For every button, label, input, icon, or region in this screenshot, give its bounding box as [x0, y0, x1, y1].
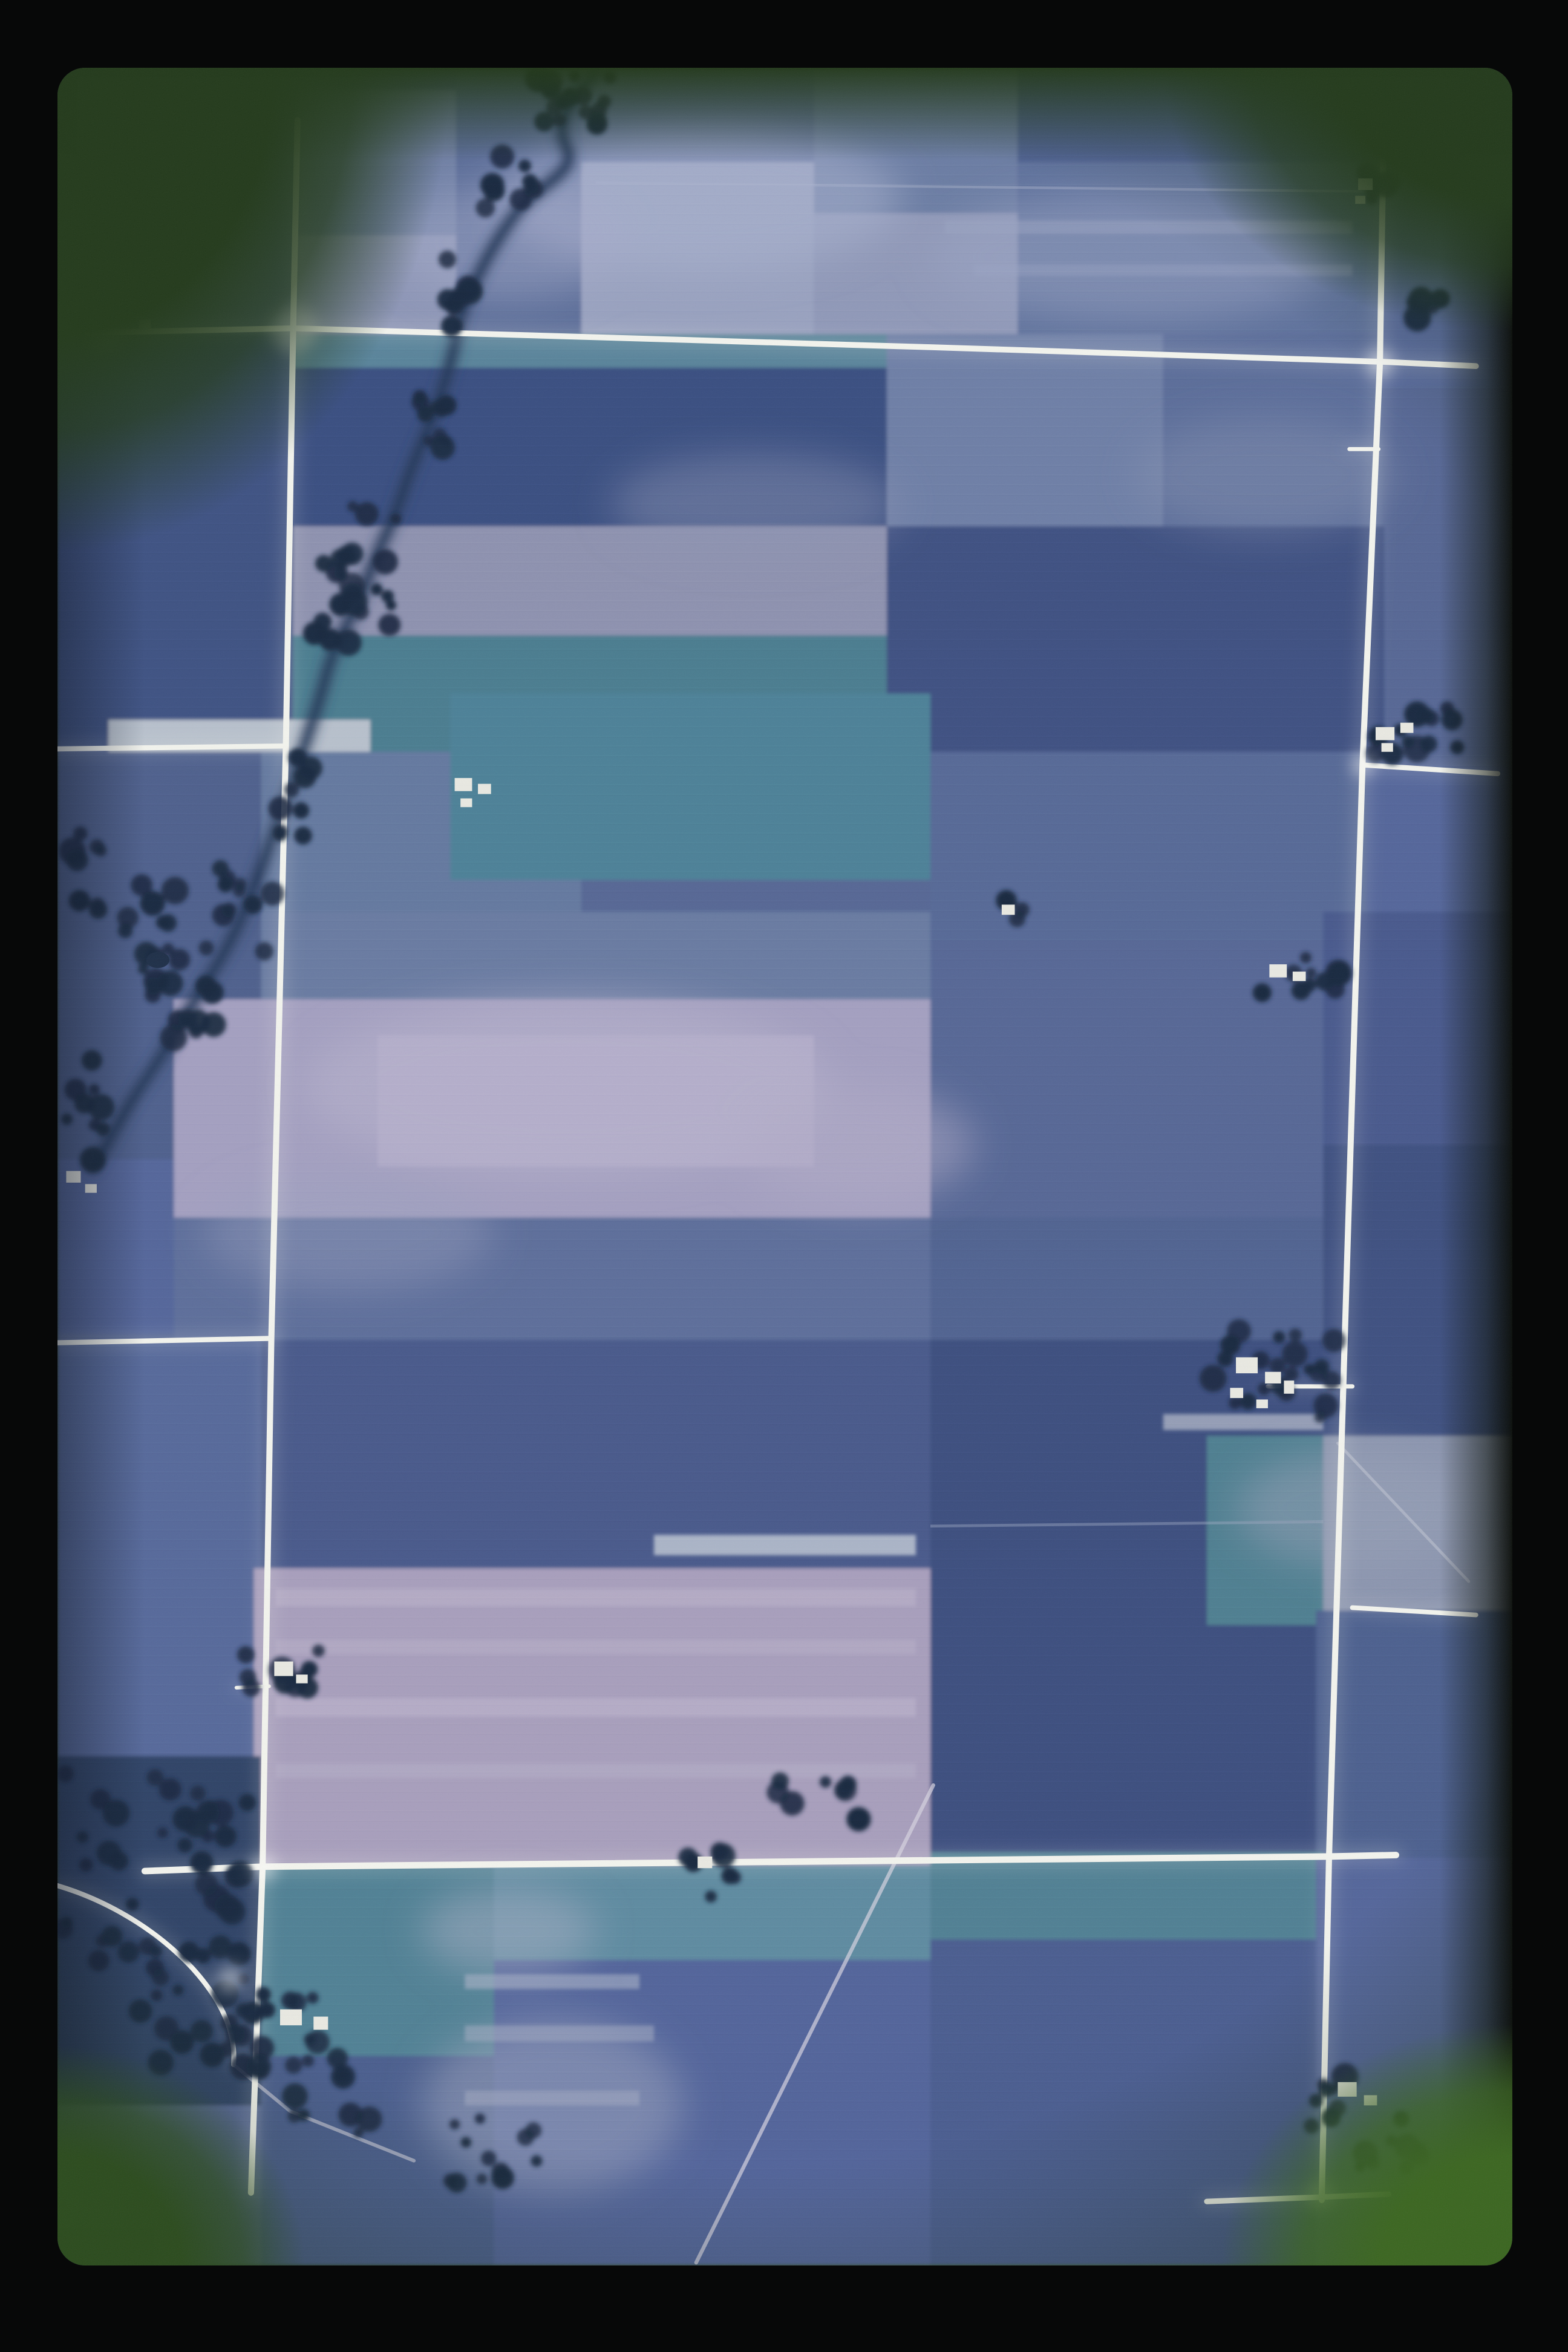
- tree: [1400, 2160, 1414, 2175]
- tree: [191, 2020, 213, 2042]
- farm-building: [85, 1184, 97, 1192]
- road-flare: [270, 305, 316, 351]
- tree: [336, 2068, 349, 2081]
- tree: [381, 590, 394, 603]
- tree: [77, 1831, 89, 1843]
- tree: [1366, 2155, 1380, 2170]
- tree: [441, 315, 463, 337]
- tree: [168, 949, 190, 970]
- tree: [1381, 170, 1402, 191]
- tree: [88, 1119, 100, 1131]
- tree: [329, 593, 352, 616]
- tree: [603, 71, 616, 84]
- road-flare: [1310, 2184, 1333, 2207]
- tree: [561, 88, 579, 106]
- tree: [1322, 1371, 1341, 1390]
- field-patch: [887, 526, 1385, 755]
- pale-patch: [741, 1086, 974, 1203]
- field-patch: [450, 694, 930, 880]
- field-streak: [465, 1975, 639, 1989]
- tree: [90, 897, 105, 913]
- tree: [1253, 983, 1272, 1002]
- tree: [242, 1679, 260, 1697]
- tree: [201, 981, 224, 1004]
- tree: [303, 622, 326, 645]
- tree: [525, 2122, 541, 2138]
- tree: [299, 757, 322, 780]
- film-frame: [57, 68, 1512, 2265]
- tree: [168, 1010, 188, 1031]
- tree: [177, 1838, 192, 1853]
- tree: [273, 824, 289, 839]
- farm-building: [460, 799, 472, 807]
- tree: [244, 895, 263, 914]
- tree: [284, 782, 299, 797]
- tree: [449, 2119, 460, 2129]
- tree: [1440, 702, 1454, 716]
- tree: [148, 2050, 174, 2076]
- farm-building: [1376, 727, 1394, 740]
- farm-building: [1338, 2082, 1356, 2097]
- tree: [587, 112, 607, 132]
- tree: [281, 1991, 299, 2010]
- tree: [373, 549, 398, 575]
- tree: [159, 1778, 181, 1800]
- tree: [159, 914, 177, 932]
- field-patch: [930, 1939, 1323, 2265]
- tree: [199, 941, 214, 956]
- tree: [1408, 287, 1434, 313]
- tree: [82, 1050, 102, 1071]
- farm-building: [66, 1171, 80, 1183]
- tree: [293, 802, 309, 818]
- farm-building: [1293, 972, 1306, 981]
- tree: [129, 1999, 152, 2023]
- tree: [1393, 2111, 1409, 2127]
- tree: [246, 2054, 271, 2079]
- tree: [439, 250, 456, 268]
- farm-building: [1236, 1357, 1258, 1373]
- tree: [481, 2151, 496, 2166]
- tree: [151, 1990, 162, 2001]
- tree: [1305, 968, 1316, 979]
- tree: [224, 1864, 249, 1888]
- tree: [523, 178, 543, 198]
- tree: [569, 70, 580, 82]
- tree: [1200, 1365, 1227, 1392]
- tree: [483, 180, 505, 201]
- tree: [201, 1012, 226, 1037]
- field-patch: [1316, 1858, 1512, 2265]
- farm-building: [1256, 1399, 1268, 1408]
- tree: [102, 1926, 123, 1947]
- farm-building: [1265, 1372, 1281, 1383]
- tree: [241, 2001, 264, 2024]
- tree: [1273, 1331, 1285, 1343]
- field-patch: [57, 1340, 261, 1759]
- tree: [1315, 1411, 1326, 1423]
- field-streak: [654, 1535, 916, 1555]
- tree: [1229, 1397, 1241, 1410]
- tree: [710, 1842, 728, 1860]
- tree: [312, 1645, 325, 1658]
- farm-building: [1230, 1388, 1243, 1398]
- tree: [238, 1794, 255, 1811]
- tree: [227, 1942, 251, 1965]
- pale-patch: [421, 2018, 683, 2193]
- tree: [835, 1782, 852, 1799]
- farm-building: [1382, 743, 1393, 751]
- tree: [417, 405, 433, 422]
- tree: [1423, 710, 1439, 726]
- tree: [1318, 2082, 1334, 2097]
- farm-building: [455, 778, 472, 791]
- tree: [162, 877, 189, 904]
- tree: [449, 287, 471, 308]
- tree: [268, 797, 292, 820]
- field-streak: [276, 1589, 916, 1606]
- tree: [294, 826, 312, 844]
- farm-building: [1358, 178, 1373, 190]
- tree: [1321, 2108, 1341, 2127]
- tree: [475, 2114, 485, 2124]
- tree: [1325, 959, 1351, 986]
- field-patch: [57, 1159, 174, 1334]
- tree: [80, 1147, 106, 1173]
- pale-patch: [930, 192, 1338, 323]
- farm-building: [274, 1662, 293, 1676]
- tree: [255, 942, 273, 961]
- tree: [255, 1987, 270, 2002]
- tree: [218, 877, 234, 892]
- pale-patch: [203, 1174, 494, 1290]
- tree: [214, 1894, 240, 1920]
- tree: [1355, 2162, 1365, 2172]
- tree: [391, 514, 402, 524]
- tree: [302, 2055, 314, 2067]
- tree: [118, 923, 133, 938]
- pale-patch: [421, 1887, 596, 1974]
- field-patch: [57, 334, 293, 749]
- tree: [97, 1841, 122, 1866]
- road-flare: [1352, 755, 1373, 776]
- tree: [1414, 2143, 1426, 2155]
- tree: [491, 2166, 514, 2189]
- tree: [1314, 1359, 1329, 1374]
- tree: [460, 2137, 471, 2148]
- farm-building: [126, 307, 142, 318]
- farm-building: [1269, 964, 1287, 978]
- tree: [1304, 2118, 1319, 2134]
- tree: [237, 1646, 255, 1664]
- farm-building: [313, 2017, 328, 2030]
- field-patch: [1367, 766, 1513, 912]
- tree: [79, 1858, 93, 1872]
- farm-building: [1355, 196, 1365, 204]
- tree: [201, 1800, 218, 1817]
- tree: [190, 1786, 205, 1802]
- tree: [282, 2083, 308, 2109]
- tree: [59, 838, 86, 865]
- tree: [190, 1851, 213, 1874]
- field-patch: [1382, 68, 1512, 388]
- tree: [728, 1870, 742, 1884]
- tree: [477, 2174, 488, 2184]
- pale-patch: [1134, 417, 1396, 533]
- tree: [126, 1898, 139, 1911]
- tree: [152, 1969, 169, 1986]
- tree: [260, 881, 284, 906]
- tree: [90, 1789, 111, 1809]
- tree: [771, 1772, 789, 1790]
- tree: [537, 69, 563, 95]
- tree: [433, 428, 446, 442]
- tree: [118, 1941, 140, 1963]
- tree: [90, 839, 105, 854]
- road-flare: [218, 1965, 244, 1991]
- tree: [1402, 736, 1414, 748]
- field-streak: [1163, 1414, 1324, 1430]
- field-streak: [276, 1763, 916, 1778]
- road-flare: [88, 316, 120, 348]
- tree: [846, 1807, 871, 1831]
- tree: [157, 1828, 168, 1838]
- field-patch: [261, 912, 930, 999]
- tree: [546, 99, 562, 115]
- tree: [233, 884, 246, 897]
- tree: [214, 1825, 237, 1847]
- aerial-photo: [57, 68, 1512, 2265]
- tree: [1220, 1335, 1240, 1355]
- road-flare: [252, 1857, 275, 1880]
- tree: [88, 1950, 109, 1971]
- field-patch: [930, 752, 1382, 941]
- tree: [1300, 952, 1312, 964]
- tree: [131, 874, 152, 896]
- farm-building: [1400, 723, 1414, 733]
- field-patch: [1316, 1610, 1512, 1858]
- pale-patch: [610, 454, 901, 555]
- farm-building: [478, 784, 491, 794]
- farm-building: [139, 319, 151, 328]
- road: [57, 746, 286, 749]
- farm-building: [1284, 1380, 1294, 1394]
- tree: [443, 2174, 458, 2188]
- pale-patch: [1236, 1451, 1469, 1567]
- farm-building: [296, 1674, 307, 1683]
- farm-building: [697, 1857, 712, 1868]
- farm-building: [1002, 904, 1015, 915]
- tree: [61, 1917, 73, 1929]
- tree: [304, 2033, 316, 2045]
- pond: [146, 952, 169, 968]
- tree: [705, 1890, 717, 1903]
- tree: [285, 2057, 302, 2074]
- tree: [820, 1776, 831, 1788]
- tree: [154, 2016, 178, 2040]
- tree: [1322, 1329, 1345, 1352]
- tree: [220, 2040, 236, 2057]
- tree: [371, 583, 383, 595]
- road-flare: [1367, 350, 1393, 376]
- tree: [298, 2109, 310, 2121]
- tree: [355, 502, 379, 526]
- field-patch: [887, 334, 1163, 528]
- tree: [1289, 1328, 1302, 1342]
- tree: [74, 1093, 95, 1114]
- tree: [145, 978, 162, 995]
- tree: [88, 1084, 100, 1096]
- tree: [61, 1113, 73, 1125]
- field-patch: [930, 1218, 1382, 1342]
- field-streak: [276, 1698, 916, 1717]
- tree: [69, 890, 91, 912]
- tree: [307, 1992, 319, 2004]
- tree: [139, 1938, 156, 1955]
- tree: [1450, 740, 1464, 754]
- tree: [1270, 1357, 1286, 1374]
- farm-building: [280, 2010, 302, 2025]
- tree: [534, 112, 554, 132]
- tree: [356, 2106, 382, 2132]
- tree: [1282, 1341, 1307, 1367]
- tree: [378, 613, 400, 636]
- field-patch: [1018, 68, 1381, 162]
- slide-scan: [0, 0, 1568, 2352]
- tree: [172, 1806, 198, 1832]
- tree: [172, 1985, 183, 1996]
- tree: [490, 145, 514, 169]
- tree: [531, 2155, 542, 2167]
- tree: [518, 160, 531, 172]
- farm-building: [1364, 2096, 1377, 2106]
- tree: [1258, 1382, 1270, 1395]
- field-streak: [276, 1639, 916, 1654]
- tree: [212, 904, 235, 926]
- tree: [325, 561, 348, 583]
- tree: [178, 1941, 200, 1962]
- tree: [1309, 2094, 1323, 2108]
